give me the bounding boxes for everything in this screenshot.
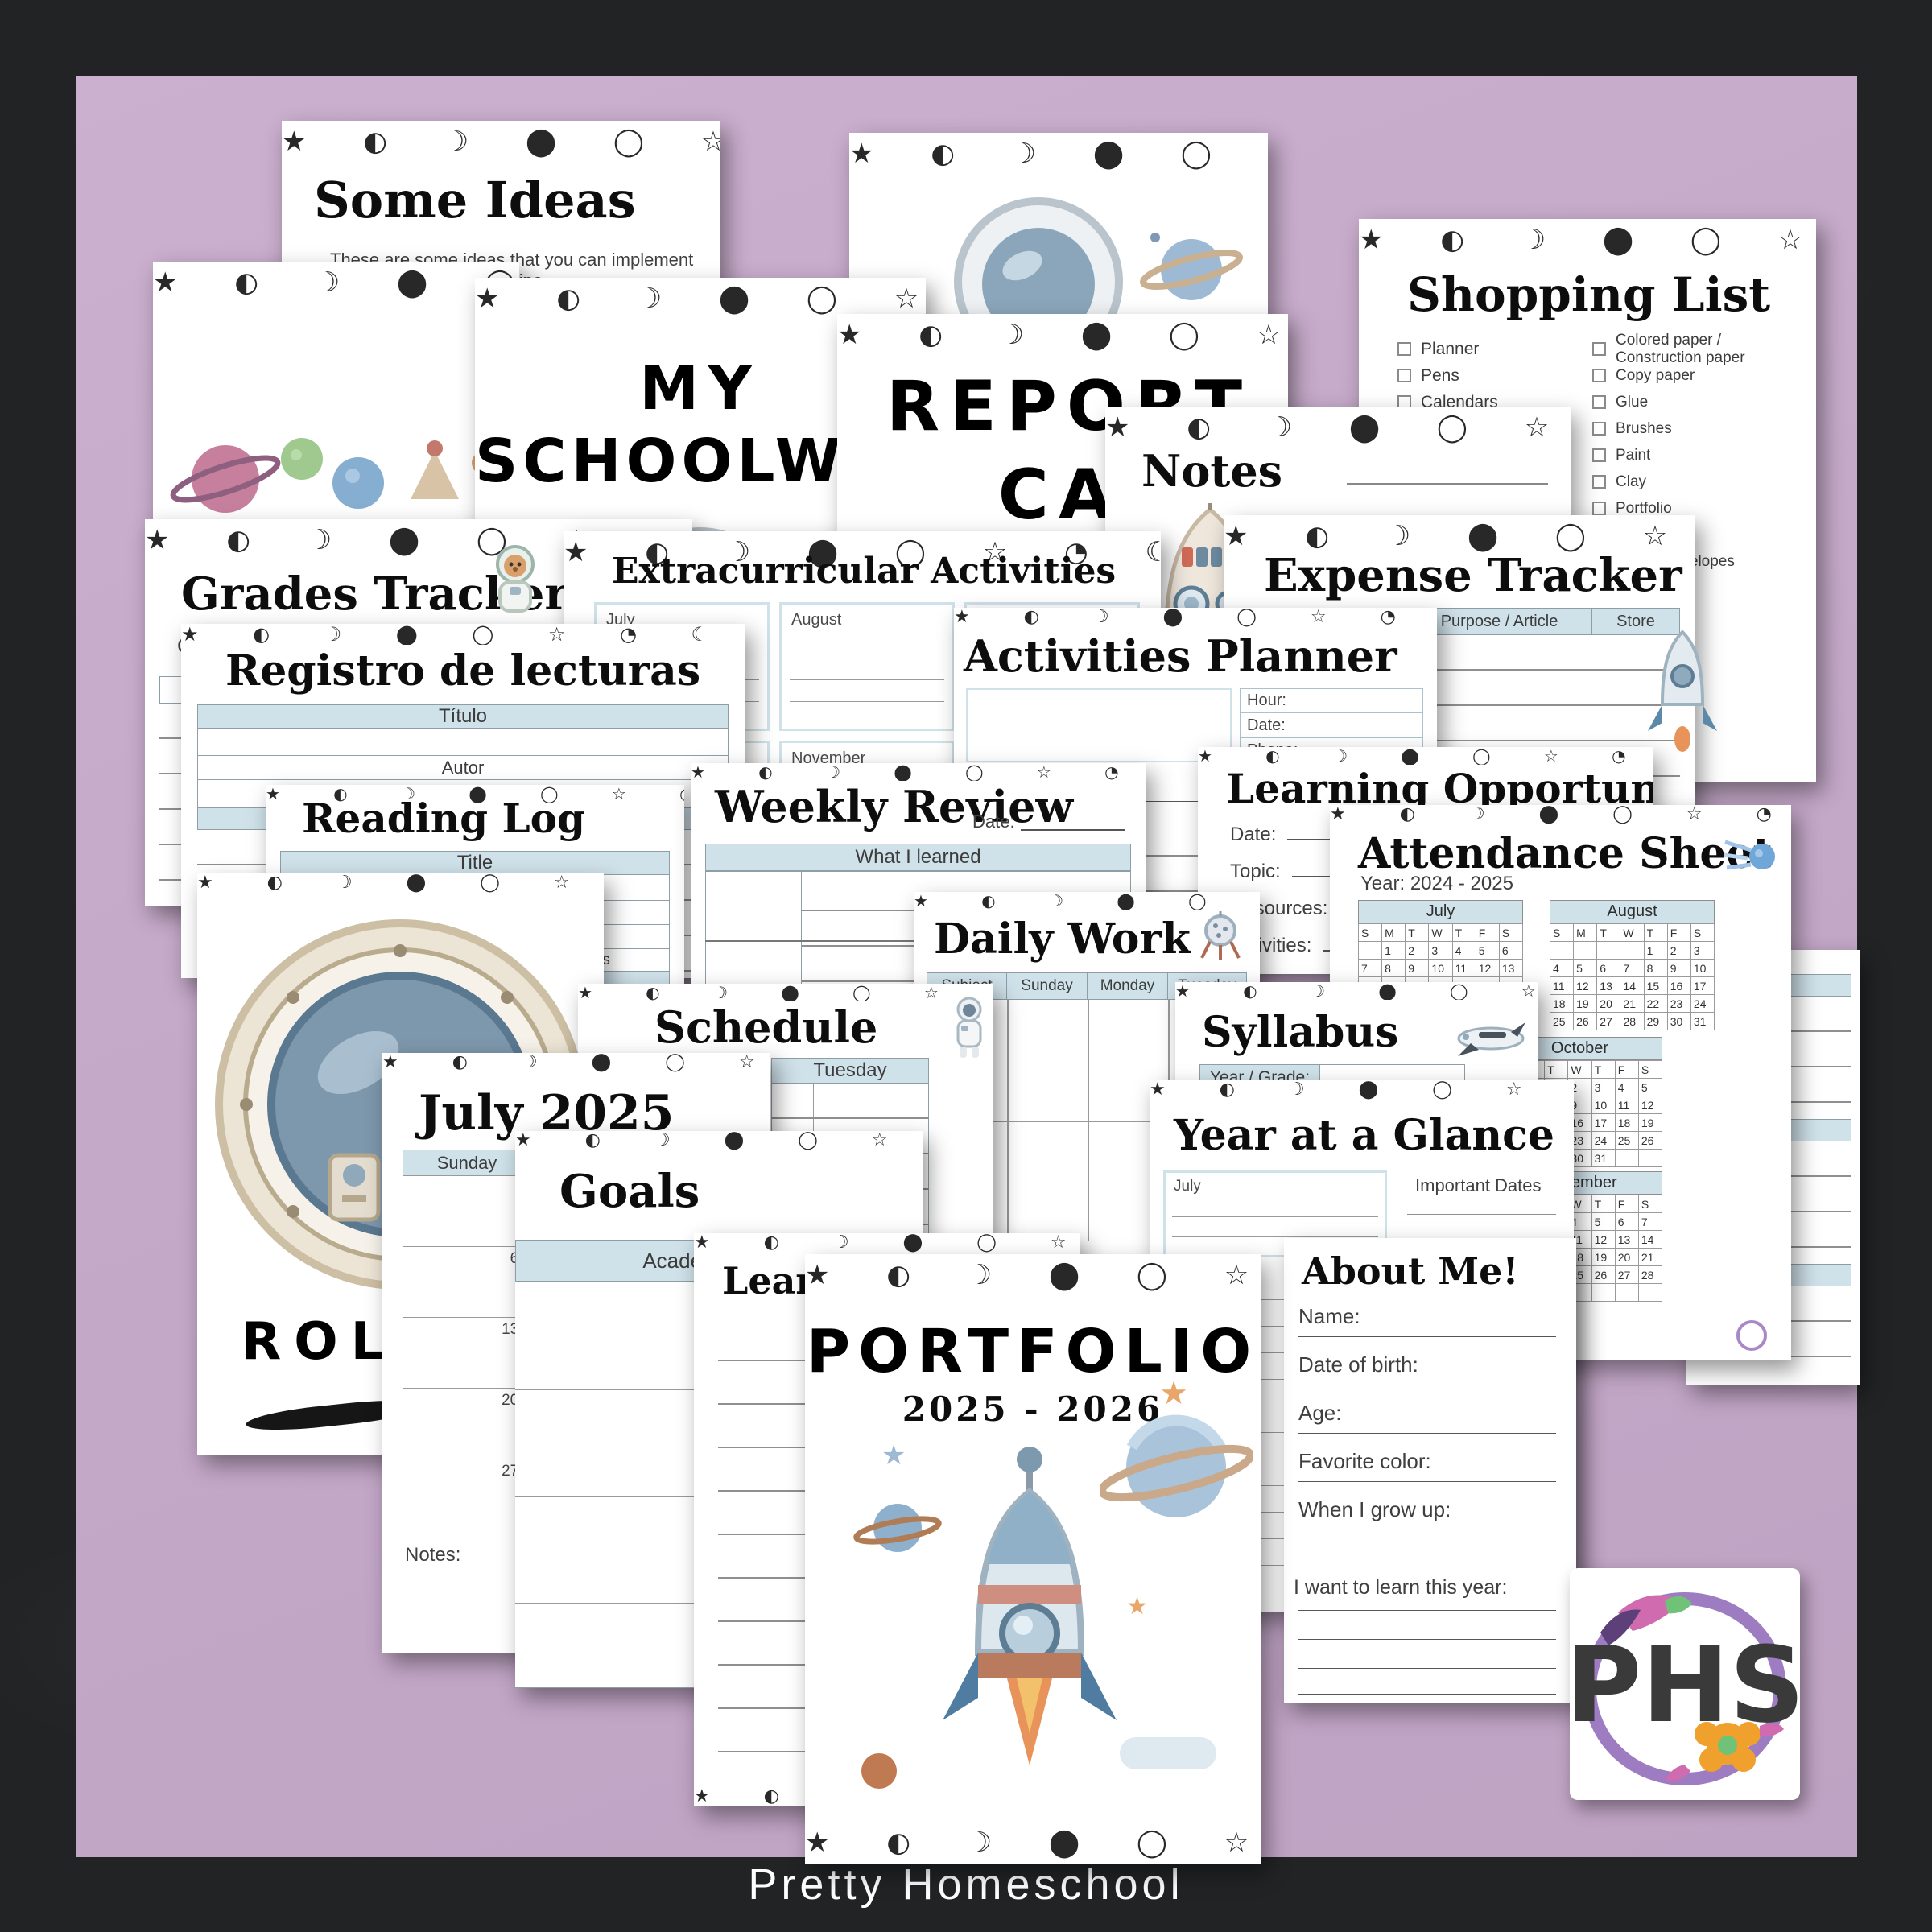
calendar-day-cell[interactable]: 11: [1452, 960, 1476, 977]
space-doodle-pattern: [1150, 1080, 1574, 1100]
calendar-day-cell[interactable]: 4: [1550, 960, 1574, 977]
column-header: Monday: [1088, 972, 1168, 1000]
calendar-day-cell[interactable]: 1: [1644, 942, 1667, 960]
calendar-day-cell[interactable]: 31: [1591, 1150, 1615, 1167]
write-line: [1298, 1694, 1556, 1695]
page-title: About Me!: [1302, 1249, 1519, 1293]
calendar-day-cell[interactable]: 26: [1574, 1013, 1597, 1030]
field-label: Date:: [1230, 824, 1276, 846]
space-doodle-pattern: [849, 133, 1268, 175]
shopping-item: Planner: [1397, 336, 1587, 362]
brand-caption: Pretty Homeschool: [0, 1860, 1932, 1909]
calendar-day-cell[interactable]: 27: [1597, 1013, 1620, 1030]
day-letter: S: [1690, 924, 1714, 942]
day-letter: T: [1406, 924, 1429, 942]
page-title: Notes: [1141, 445, 1282, 497]
day-letter: S: [1638, 1195, 1662, 1213]
calendar-day-cell[interactable]: 19: [1591, 1249, 1615, 1266]
write-line: [1298, 1385, 1556, 1385]
table-row: [197, 729, 729, 756]
day-letter: F: [1615, 1195, 1638, 1213]
calendar-day-cell[interactable]: 24: [1690, 995, 1714, 1013]
activity-box: [966, 688, 1232, 762]
calendar-day-cell[interactable]: 13: [1499, 960, 1522, 977]
calendar-day-cell[interactable]: 17: [1591, 1114, 1615, 1132]
calendar-day-cell[interactable]: 20: [1615, 1249, 1638, 1266]
calendar-day-cell[interactable]: 5: [1591, 1213, 1615, 1231]
tuesday-header: Tuesday: [771, 1058, 929, 1084]
day-letter: F: [1476, 924, 1499, 942]
day-letter: M: [1574, 924, 1597, 942]
page-about-me: About Me! Name: Date of birth: Age: Favo…: [1284, 1238, 1576, 1703]
field-label: Topic:: [1230, 861, 1281, 883]
what-i-learned-header: What I learned: [705, 844, 1131, 871]
calendar-day-cell[interactable]: 12: [1574, 977, 1597, 995]
day-letter: S: [1359, 924, 1382, 942]
calendar-day-cell[interactable]: 12: [1476, 960, 1499, 977]
calendar-day-cell[interactable]: 5: [1574, 960, 1597, 977]
calendar-month-name: August: [1550, 900, 1715, 923]
planet-dot-decoration: [861, 1753, 897, 1789]
calendar-day-cell[interactable]: [1574, 942, 1597, 960]
space-doodle-pattern: [694, 1233, 1080, 1253]
calendar-day-cell[interactable]: 30: [1667, 1013, 1690, 1030]
checkbox-icon[interactable]: [1397, 369, 1411, 382]
calendar-day-cell[interactable]: 23: [1667, 995, 1690, 1013]
calendar-day-cell[interactable]: 13: [1597, 977, 1620, 995]
calendar-day-cell[interactable]: 17: [1690, 977, 1714, 995]
calendar-day-cell[interactable]: 3: [1690, 942, 1714, 960]
teddy-astronaut-illustration: [487, 543, 543, 616]
month-label: July: [1166, 1173, 1385, 1195]
star-decoration: ★: [881, 1439, 906, 1472]
checkbox-icon[interactable]: [1592, 475, 1606, 489]
product-mockup: { "footer": { "brand": "Pretty Homeschoo…: [0, 0, 1932, 1932]
checkbox-icon[interactable]: [1592, 448, 1606, 462]
day-letter: M: [1382, 924, 1406, 942]
calendar-day-cell[interactable]: 12: [1638, 1096, 1662, 1114]
space-doodle-pattern: [515, 1131, 923, 1150]
calendar-day-cell[interactable]: 19: [1574, 995, 1597, 1013]
calendar-day-cell[interactable]: 14: [1638, 1231, 1662, 1249]
age-label: Age:: [1298, 1401, 1342, 1426]
calendar-day-cell[interactable]: 18: [1615, 1114, 1638, 1132]
calendar-day-cell[interactable]: [1550, 942, 1574, 960]
space-doodle-pattern: [1198, 747, 1653, 765]
space-doodle-pattern: [805, 1822, 1261, 1864]
shopping-item: Colored paper / Construction paper: [1592, 336, 1806, 362]
calendar-day-cell[interactable]: 24: [1591, 1132, 1615, 1150]
day-letter: T: [1545, 1061, 1568, 1079]
calendar-day-cell[interactable]: 26: [1591, 1266, 1615, 1284]
calendar-day-cell[interactable]: 27: [1615, 1266, 1638, 1284]
shopping-item: Brushes: [1592, 415, 1806, 442]
calendar-day-cell[interactable]: 2: [1406, 942, 1429, 960]
autor-header: Autor: [197, 756, 729, 780]
space-doodle-pattern: [914, 892, 1260, 910]
calendar-day-cell[interactable]: 3: [1591, 1079, 1615, 1096]
checkbox-icon[interactable]: [1592, 502, 1606, 515]
calendar-day-cell[interactable]: [1591, 1284, 1615, 1302]
page-title: Syllabus: [1202, 1008, 1398, 1057]
dob-label: Date of birth:: [1298, 1352, 1418, 1377]
calendar-day-cell[interactable]: 27: [403, 1459, 526, 1530]
name-label: Name:: [1298, 1304, 1360, 1329]
calendar-day-cell[interactable]: 6: [1499, 942, 1522, 960]
phs-logo: PHS: [1570, 1568, 1800, 1800]
page-title: Expense Tracker: [1264, 549, 1682, 602]
lunar-lander-illustration: [1195, 911, 1245, 964]
comet-illustration: [1724, 834, 1780, 879]
calendar-day-cell[interactable]: 25: [1615, 1132, 1638, 1150]
page-title: Registro de lecturas: [225, 646, 700, 696]
calendar-day-cell[interactable]: 4: [1615, 1079, 1638, 1096]
planets-illustration: [169, 423, 507, 527]
write-line: [1347, 483, 1548, 485]
calendar-day-cell[interactable]: [1615, 1284, 1638, 1302]
day-letter: W: [1429, 924, 1452, 942]
notes-label: Notes:: [405, 1544, 460, 1567]
day-letter: T: [1591, 1195, 1615, 1213]
title-header: Title: [280, 851, 670, 875]
page-title: Shopping List: [1407, 267, 1770, 322]
page-planets-picture: [153, 262, 519, 527]
month-box: August: [779, 602, 955, 731]
calendar-day-cell[interactable]: 29: [1644, 1013, 1667, 1030]
calendar-day-cell[interactable]: 6: [1597, 960, 1620, 977]
hour-field: Hour:: [1240, 688, 1423, 713]
calendar-day-cell[interactable]: [1597, 942, 1620, 960]
star-decoration: ★: [1126, 1592, 1148, 1620]
small-planet-illustration: [849, 1492, 946, 1564]
learn-this-year-label: I want to learn this year:: [1294, 1576, 1507, 1600]
write-line: [1021, 829, 1125, 831]
saturn-illustration: [1100, 1399, 1253, 1536]
calendar-day-cell[interactable]: [403, 1176, 526, 1247]
date-field: Date:: [1240, 713, 1423, 738]
day-letter: F: [1667, 924, 1690, 942]
calendar-grid: SMTWTFS123456789101112131415161718192021…: [1550, 923, 1715, 1030]
calendar-day-cell[interactable]: 7: [1620, 960, 1644, 977]
calendar-day-cell[interactable]: 7: [1359, 960, 1382, 977]
calendar-day-cell[interactable]: 20: [403, 1389, 526, 1459]
calendar-day-cell[interactable]: [1638, 1150, 1662, 1167]
calendar-day-cell[interactable]: 5: [1476, 942, 1499, 960]
calendar-day-cell[interactable]: 6: [1615, 1213, 1638, 1231]
day-letter: S: [1638, 1061, 1662, 1079]
calendar-day-cell[interactable]: 13: [1615, 1231, 1638, 1249]
calendar-day-cell[interactable]: 7: [1638, 1213, 1662, 1231]
star-decoration: ★: [1159, 1375, 1188, 1412]
write-line: [1298, 1668, 1556, 1669]
calendar-day-cell[interactable]: 25: [1550, 1013, 1574, 1030]
day-letter: T: [1597, 924, 1620, 942]
shopping-item: Paint: [1592, 442, 1806, 469]
calendar-august: AugustSMTWTFS123456789101112131415161718…: [1550, 900, 1715, 1030]
space-doodle-pattern: [181, 624, 745, 645]
calendar-day-cell[interactable]: [1615, 1150, 1638, 1167]
day-letter: T: [1644, 924, 1667, 942]
calendar-day-cell[interactable]: 20: [1597, 995, 1620, 1013]
write-line: [1298, 1336, 1556, 1337]
calendar-day-cell[interactable]: 15: [1644, 977, 1667, 995]
calendar-day-cell[interactable]: 28: [1638, 1266, 1662, 1284]
month-label: August: [782, 605, 952, 630]
calendar-day-cell[interactable]: 8: [1644, 960, 1667, 977]
calendar-day-cell[interactable]: 12: [1591, 1231, 1615, 1249]
calendar-day-cell[interactable]: 22: [1644, 995, 1667, 1013]
write-line: [1298, 1529, 1556, 1530]
calendar-day-cell[interactable]: 13: [403, 1318, 526, 1389]
day-letter: W: [1568, 1061, 1591, 1079]
checkbox-icon[interactable]: [1592, 395, 1606, 409]
calendar-day-cell[interactable]: 21: [1620, 995, 1644, 1013]
shopping-item: Glue: [1592, 389, 1806, 415]
calendar-day-cell[interactable]: 6: [403, 1247, 526, 1318]
calendar-day-cell[interactable]: 26: [1638, 1132, 1662, 1150]
space-doodle-pattern: [837, 314, 1288, 356]
page-title: Goals: [559, 1165, 700, 1218]
day-letter: F: [1615, 1061, 1638, 1079]
saturn-illustration: [1139, 221, 1244, 318]
column-header: Sunday: [402, 1150, 531, 1177]
shopping-item: Clay: [1592, 469, 1806, 495]
day-letter: S: [1550, 924, 1574, 942]
calendar-day-cell[interactable]: 4: [1452, 942, 1476, 960]
write-line: [1298, 1610, 1556, 1611]
column-header: Sunday: [1007, 972, 1088, 1000]
space-doodle-pattern: [805, 1254, 1261, 1296]
space-doodle-pattern: [1359, 219, 1816, 261]
space-doodle-pattern: [1175, 982, 1538, 1000]
calendar-day-cell[interactable]: 1: [1382, 942, 1406, 960]
page-title: Schedule: [654, 1001, 877, 1053]
calendar-day-cell[interactable]: 11: [1550, 977, 1574, 995]
calendar-day-cell[interactable]: 21: [1638, 1249, 1662, 1266]
page-title: Daily Work: [934, 914, 1191, 964]
write-line: [1298, 1433, 1556, 1434]
calendar-day-cell[interactable]: 11: [1615, 1096, 1638, 1114]
calendar-day-cell[interactable]: 9: [1406, 960, 1429, 977]
calendar-day-cell[interactable]: 3: [1429, 942, 1452, 960]
space-doodle-pattern: [954, 608, 1437, 627]
calendar-day-cell[interactable]: 10: [1429, 960, 1452, 977]
calendar-day-cell[interactable]: 31: [1690, 1013, 1714, 1030]
checkbox-icon[interactable]: [1592, 422, 1606, 436]
year-label: Year: 2024 - 2025: [1360, 873, 1513, 895]
space-doodle-pattern: [1330, 805, 1791, 824]
space-doodle-pattern: [691, 763, 1146, 781]
titulo-header: Título: [197, 704, 729, 729]
calendar-day-cell[interactable]: 14: [1620, 977, 1644, 995]
calendar-day-cell[interactable]: 19: [1638, 1114, 1662, 1132]
page-title: Weekly Review: [715, 781, 1073, 832]
calendar-day-cell[interactable]: 16: [1667, 977, 1690, 995]
favorite-color-label: Favorite color:: [1298, 1449, 1431, 1474]
phs-monogram: PHS: [1570, 1624, 1800, 1746]
page-title: Extracurricular Activities: [612, 551, 1116, 592]
checkbox-icon[interactable]: [1592, 369, 1606, 382]
calendar-day-cell[interactable]: [1638, 1284, 1662, 1302]
date-label: Date:: [972, 811, 1015, 832]
space-doodle-pattern: [282, 121, 720, 163]
checkbox-icon[interactable]: [1592, 342, 1606, 356]
day-letter: W: [1620, 924, 1644, 942]
shopping-item: Pens: [1397, 362, 1587, 389]
calendar-day-cell[interactable]: [1620, 942, 1644, 960]
space-shuttle-illustration: [1455, 1014, 1531, 1063]
checkbox-icon[interactable]: [1397, 342, 1411, 356]
calendar-day-cell[interactable]: 9: [1667, 960, 1690, 977]
phs-stamp-icon: [1736, 1320, 1767, 1351]
space-doodle-pattern: [1105, 407, 1571, 448]
grow-up-label: When I grow up:: [1298, 1497, 1451, 1522]
calendar-day-cell[interactable]: 10: [1690, 960, 1714, 977]
astronaut-illustration: [948, 997, 990, 1059]
phs-logo-graphic: PHS: [1570, 1568, 1800, 1800]
calendar-day-cell[interactable]: 28: [1620, 1013, 1644, 1030]
calendar-day-cell[interactable]: 10: [1591, 1096, 1615, 1114]
space-doodle-pattern: [382, 1053, 770, 1072]
cloud-decoration: [1120, 1737, 1216, 1769]
calendar-month-name: July: [1358, 900, 1523, 923]
cover-title: PORTFOLIO: [805, 1317, 1261, 1386]
calendar-day-cell[interactable]: [1359, 942, 1382, 960]
day-letter: S: [1499, 924, 1522, 942]
write-line: [1298, 1639, 1556, 1640]
day-letter: T: [1591, 1061, 1615, 1079]
page-title: Activities Planner: [964, 630, 1397, 682]
calendar-day-cell[interactable]: 8: [1382, 960, 1406, 977]
day-letter: T: [1452, 924, 1476, 942]
page-title: Reading Log: [302, 795, 585, 842]
rocket-illustration: [1638, 628, 1727, 757]
calendar-day-cell[interactable]: 18: [1550, 995, 1574, 1013]
write-lines: [790, 637, 944, 722]
write-line: [1298, 1481, 1556, 1482]
space-doodle-pattern: [197, 873, 604, 893]
space-doodle-pattern: [153, 262, 519, 303]
space-doodle-pattern: [578, 984, 993, 1001]
page-title: Year at a Glance: [1174, 1111, 1554, 1160]
calendar-day-cell[interactable]: 5: [1638, 1079, 1662, 1096]
page-portfolio-cover: PORTFOLIO 2025 - 2026 ★ ★ ★: [805, 1254, 1261, 1864]
calendar-day-cell[interactable]: 2: [1667, 942, 1690, 960]
page-title: Some Ideas: [314, 171, 636, 229]
page-title: Attendance Sheet: [1358, 829, 1773, 878]
